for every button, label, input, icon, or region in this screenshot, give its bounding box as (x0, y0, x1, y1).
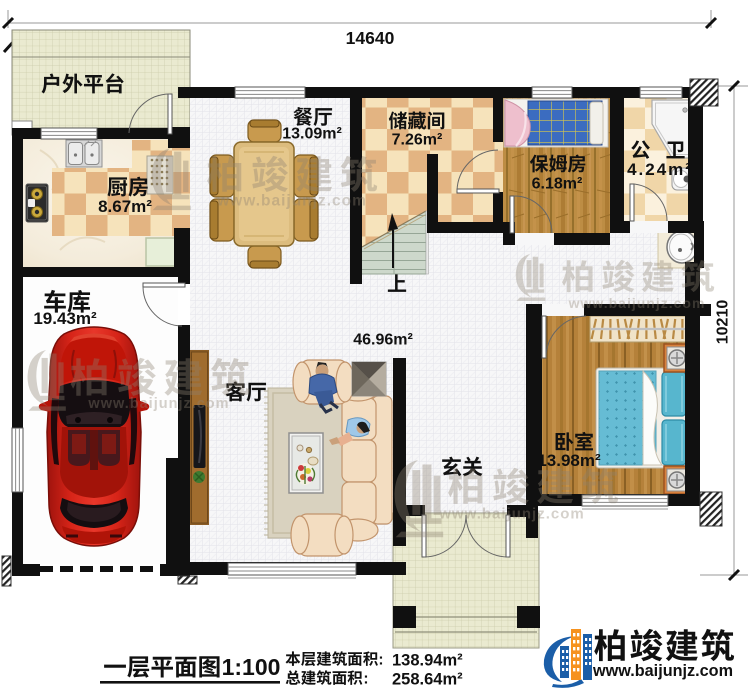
svg-text:7.26m²: 7.26m² (392, 132, 443, 149)
svg-text:14640: 14640 (346, 28, 395, 48)
svg-text:46.96m²: 46.96m² (353, 332, 413, 349)
svg-text:13.09m²: 13.09m² (282, 126, 342, 143)
svg-text:4.24m²: 4.24m² (627, 160, 693, 179)
svg-text:10210: 10210 (715, 300, 732, 345)
svg-text:1:100: 1:100 (222, 654, 281, 680)
svg-text:www.baijunjz.com: www.baijunjz.com (568, 295, 706, 311)
svg-text:6.18m²: 6.18m² (532, 176, 583, 193)
svg-text:www.baijunjz.com: www.baijunjz.com (438, 505, 584, 522)
svg-text:258.64m²: 258.64m² (392, 670, 463, 688)
svg-text:8.67m²: 8.67m² (98, 197, 152, 216)
svg-text:13.98m²: 13.98m² (537, 451, 601, 470)
svg-text:138.94m²: 138.94m² (392, 651, 463, 669)
svg-text::: : (363, 671, 368, 688)
svg-text:www.baijunjz.com: www.baijunjz.com (216, 193, 367, 210)
svg-text::: : (378, 652, 383, 669)
svg-text:19.43m²: 19.43m² (33, 309, 97, 328)
svg-text:www.baijunjz.com: www.baijunjz.com (87, 396, 229, 412)
svg-text:www.baijunjz.com: www.baijunjz.com (592, 662, 733, 680)
